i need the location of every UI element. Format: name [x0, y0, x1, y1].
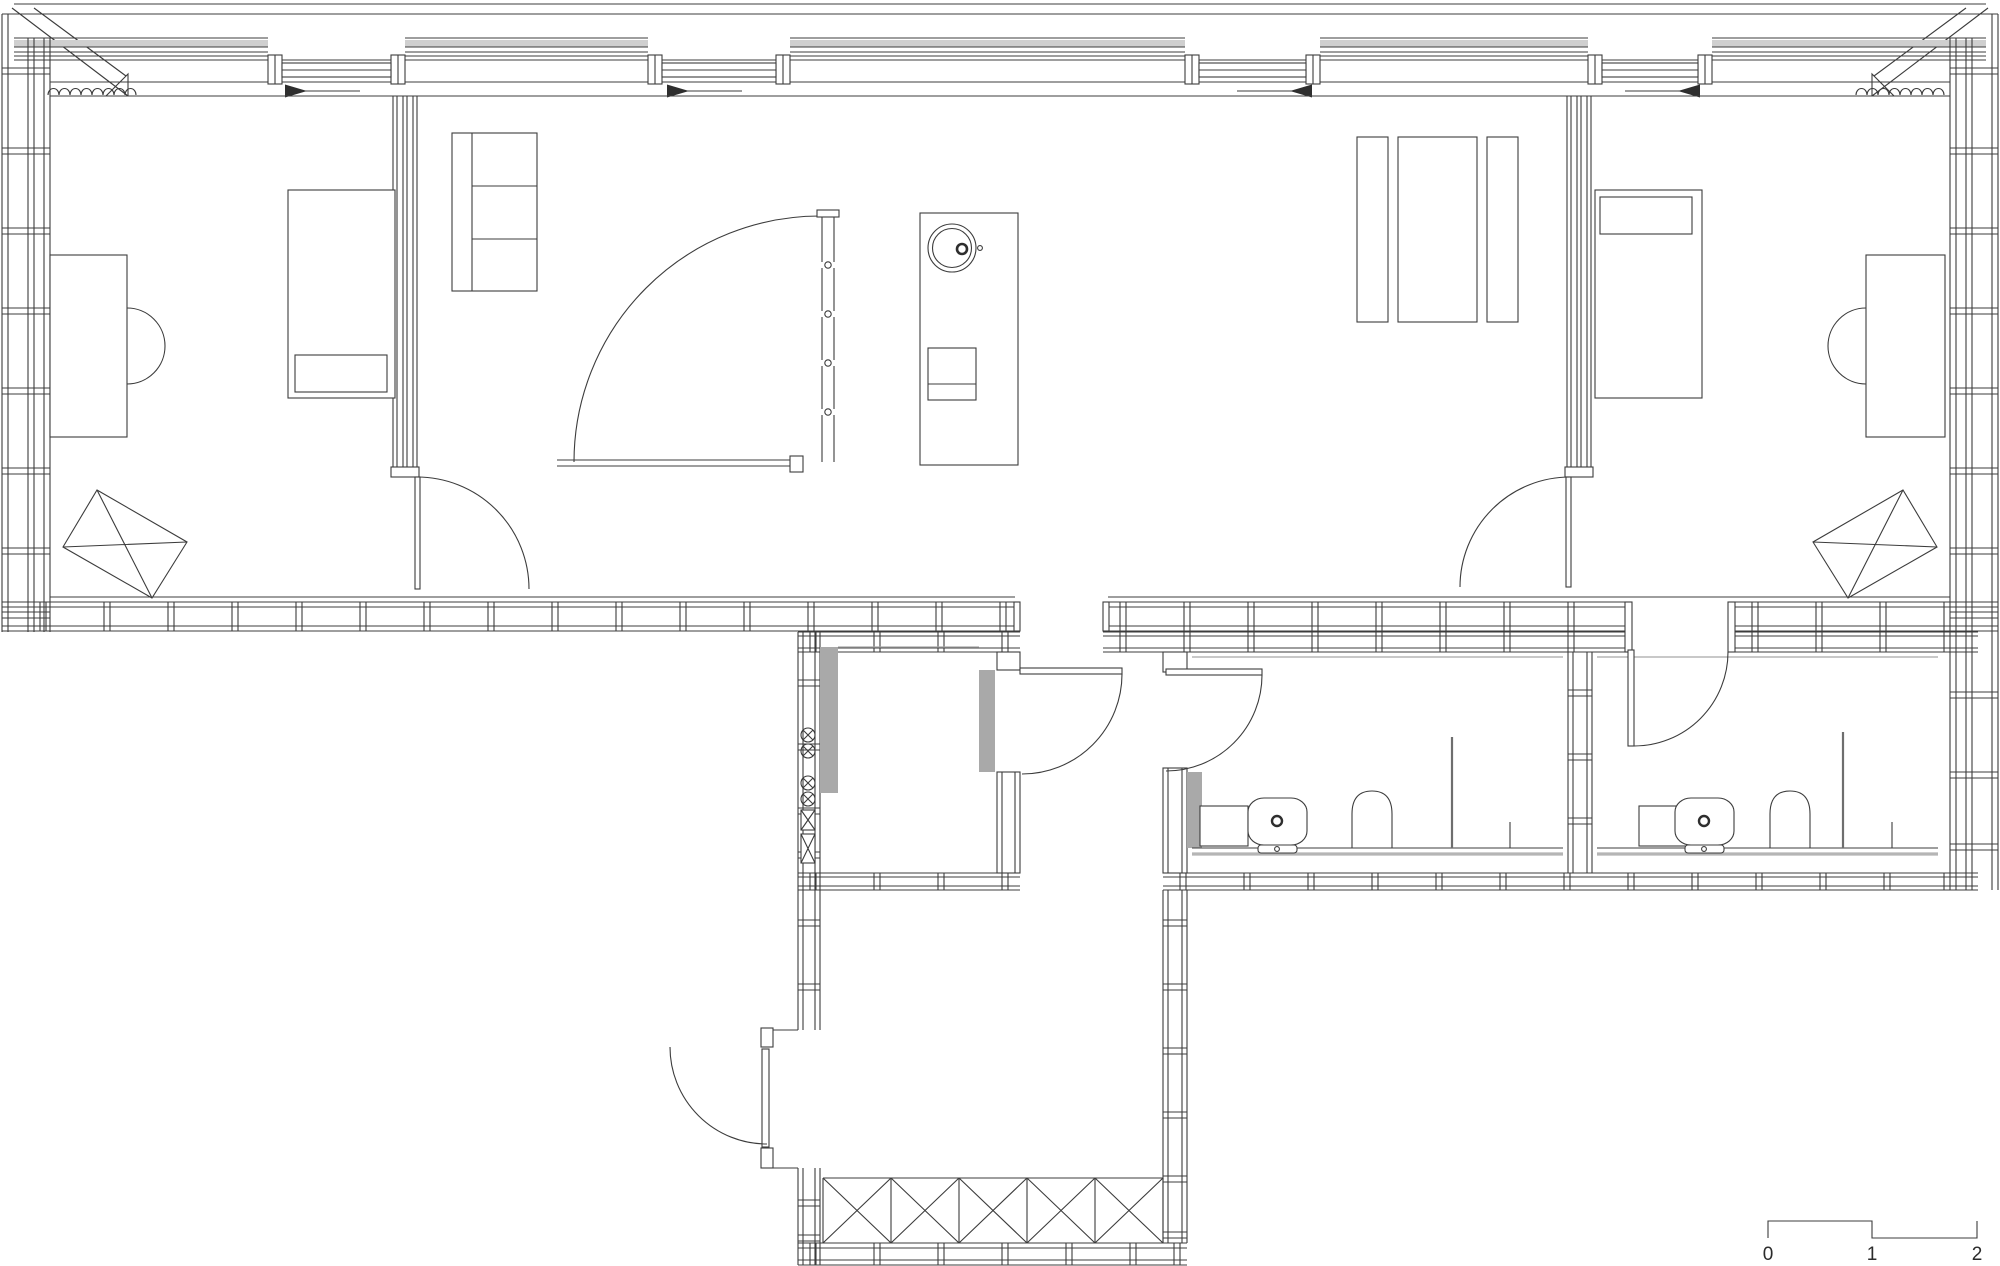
- bath2-door-jamb-right: [1728, 602, 1735, 652]
- bath2-washbasin-icon: [1675, 798, 1734, 845]
- bath1-cabinet: [1200, 806, 1248, 846]
- bath1-washbasin-icon: [1248, 798, 1307, 845]
- entrance-door-leaf: [762, 1049, 769, 1147]
- corner-miter-right: [1872, 74, 1894, 96]
- bedroom2-bed: [1595, 190, 1702, 398]
- scale-label-1: 1: [1867, 1244, 1878, 1265]
- floor-plan-drawing: 0 1 2: [0, 0, 2000, 1266]
- bath2-door-jamb-left: [1625, 602, 1632, 652]
- bedroom2-ottoman: [1813, 490, 1937, 598]
- east-wall: [1950, 14, 1998, 890]
- sliding-window-1: [268, 55, 405, 84]
- south-wall-upper-band: [2, 602, 1998, 631]
- bedroom2-desk: [1828, 255, 1945, 437]
- vestibule-walls: [798, 632, 1020, 890]
- bathroom2-fixtures: [1639, 732, 1892, 853]
- bedroom1-door-swing-arc: [417, 477, 529, 589]
- corridor-east-wall: [1163, 890, 1187, 1243]
- bathroom2-door: [1628, 650, 1728, 746]
- bedroom2-door-leaf: [1566, 477, 1571, 587]
- porch-south-wall: [798, 1243, 1187, 1265]
- sliding-window-3: [1185, 55, 1320, 84]
- bedroom2-door: [1460, 477, 1571, 587]
- west-wall: [2, 14, 50, 632]
- bedroom1-door-leaf: [415, 477, 420, 589]
- lower-wing-top-band: [798, 602, 1978, 652]
- bedroom2-pillow: [1600, 197, 1692, 234]
- sliding-window-4: [1588, 55, 1712, 84]
- bath2-toilet-icon: [1770, 791, 1810, 848]
- bedroom2-partition-wall: [1565, 96, 1593, 477]
- bedroom1-bed: [288, 190, 395, 398]
- folding-partition: [557, 210, 839, 472]
- vestibule-door: [1020, 668, 1122, 774]
- vestibule-door-swing-arc: [1022, 674, 1122, 774]
- bathroom1-fixtures: [1200, 737, 1510, 853]
- bathroom1-door: [1166, 669, 1262, 771]
- bath1-toilet-icon: [1352, 791, 1392, 848]
- porch-west-wall: [798, 1168, 820, 1265]
- bathroom1-door-leaf: [1166, 669, 1262, 675]
- entrance-door-swing-arc: [670, 1047, 767, 1144]
- bathroom2-door-swing-arc: [1634, 652, 1728, 746]
- scale-label-0: 0: [1763, 1244, 1774, 1265]
- entry-mat: [823, 1178, 1163, 1243]
- wardrobe: [1357, 137, 1518, 322]
- radiator-squiggle-right: [1856, 89, 1944, 96]
- bedroom1-pillow: [295, 355, 387, 392]
- bedroom1-ottoman: [63, 490, 187, 598]
- scale-bar: 0 1 2: [1763, 1221, 1983, 1265]
- vestibule-door-leaf: [1020, 668, 1122, 674]
- entry-west-wall: [773, 890, 820, 1030]
- bedroom2-chair: [1828, 308, 1866, 384]
- bedroom1-desk: [50, 255, 165, 437]
- sliding-window-2: [648, 55, 790, 84]
- entrance-door: [670, 1028, 798, 1168]
- bedroom2-door-swing-arc: [1460, 477, 1570, 587]
- bedroom1-chair: [127, 308, 165, 384]
- kitchen-island: [920, 213, 1018, 465]
- scale-label-2: 2: [1972, 1244, 1983, 1265]
- bathroom2-door-leaf: [1628, 650, 1634, 746]
- floor-plan-page: 0 1 2: [0, 0, 2000, 1266]
- bathroom1-door-swing-arc: [1166, 675, 1262, 771]
- sofa: [452, 133, 537, 291]
- bedroom1-door: [415, 477, 529, 589]
- folding-partition-swing-arc: [574, 216, 820, 462]
